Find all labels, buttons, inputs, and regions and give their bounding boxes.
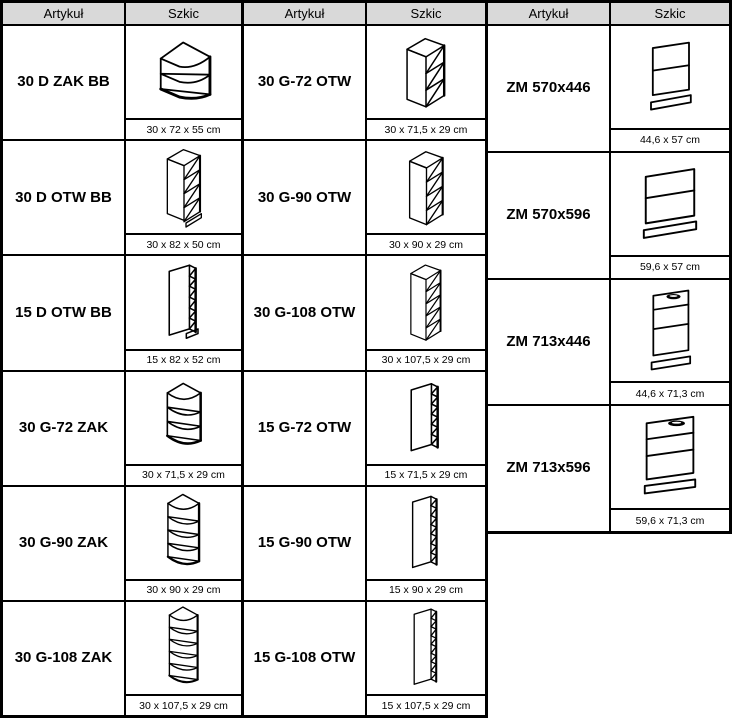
article-name: 15 G-108 OTW bbox=[244, 602, 367, 715]
open-wall-box-72-sketch-icon bbox=[401, 31, 451, 113]
sketch-image bbox=[126, 372, 241, 464]
open-wall-box-108-sketch-icon bbox=[406, 259, 446, 345]
dishwasher-front-713x446-sketch-icon bbox=[641, 287, 699, 373]
sketch-cell: 30 x 107,5 x 29 cm bbox=[126, 602, 241, 715]
table-row: 30 D ZAK BB 30 x 72 x 55 cm bbox=[3, 24, 241, 139]
sketch-image bbox=[611, 406, 729, 508]
table-row: 30 D OTW BB 30 x 82 x 50 cm bbox=[3, 139, 241, 254]
table-header: Artykuł Szkic bbox=[488, 3, 729, 24]
sketch-image bbox=[367, 26, 485, 118]
corner-wall-90-sketch-icon bbox=[162, 492, 205, 574]
table-header: Artykuł Szkic bbox=[244, 3, 485, 24]
table-row: 30 G-108 ZAK 30 x 107,5 x 29 bbox=[3, 600, 241, 715]
sketch-cell: 59,6 x 71,3 cm bbox=[611, 406, 729, 531]
article-column-header: Artykuł bbox=[244, 3, 367, 24]
dishwasher-front-570x596-sketch-icon bbox=[638, 165, 702, 243]
article-name: 30 D ZAK BB bbox=[3, 26, 126, 139]
sketch-image bbox=[367, 487, 485, 579]
cargo-base-15-sketch-icon bbox=[163, 259, 205, 346]
article-name: ZM 713x596 bbox=[488, 406, 611, 531]
sketch-dimensions: 15 x 107,5 x 29 cm bbox=[367, 694, 485, 715]
sketch-dimensions: 30 x 71,5 x 29 cm bbox=[367, 118, 485, 139]
sketch-column-header: Szkic bbox=[126, 3, 241, 24]
sketch-image bbox=[126, 602, 241, 694]
article-name: 30 G-72 ZAK bbox=[3, 372, 126, 485]
table-row: 30 G-72 ZAK 30 x 71,5 x 29 cm bbox=[3, 370, 241, 485]
sketch-cell: 30 x 72 x 55 cm bbox=[126, 26, 241, 139]
sketch-dimensions: 15 x 90 x 29 cm bbox=[367, 579, 485, 600]
article-column-header: Artykuł bbox=[488, 3, 611, 24]
sketch-image bbox=[126, 487, 241, 579]
sketch-dimensions: 15 x 82 x 52 cm bbox=[126, 349, 241, 370]
sketch-cell: 15 x 82 x 52 cm bbox=[126, 256, 241, 369]
table-row: 30 G-90 OTW 30 x 90 x 29 cm bbox=[244, 139, 485, 254]
sketch-cell: 59,6 x 57 cm bbox=[611, 153, 729, 278]
cabinet-catalog: Artykuł Szkic 30 D ZAK BB 30 x 72 x 55 c… bbox=[0, 0, 732, 718]
table-row: 30 G-72 OTW 30 x 71,5 x 29 cm bbox=[244, 24, 485, 139]
sketch-cell: 44,6 x 57 cm bbox=[611, 26, 729, 151]
table-row: ZM 570x446 44,6 x 57 cm bbox=[488, 24, 729, 151]
narrow-wall-72-sketch-icon bbox=[405, 378, 447, 458]
article-name: ZM 570x446 bbox=[488, 26, 611, 151]
sketch-image bbox=[367, 141, 485, 233]
sketch-dimensions: 30 x 90 x 29 cm bbox=[126, 579, 241, 600]
table-row: ZM 713x596 59,6 x 71,3 cm bbox=[488, 404, 729, 531]
table-row: ZM 570x596 59,6 x 57 cm bbox=[488, 151, 729, 278]
table-row: 15 G-108 OTW 15 x 107,5 x 29 cm bbox=[244, 600, 485, 715]
sketch-image bbox=[611, 153, 729, 255]
sketch-dimensions: 44,6 x 71,3 cm bbox=[611, 381, 729, 404]
sketch-dimensions: 30 x 82 x 50 cm bbox=[126, 233, 241, 254]
catalog-table-3: Artykuł Szkic ZM 570x446 44,6 x 57 cm ZM… bbox=[485, 0, 732, 534]
article-name: 15 G-90 OTW bbox=[244, 487, 367, 600]
sketch-cell: 30 x 107,5 x 29 cm bbox=[367, 256, 485, 369]
corner-wall-72-sketch-icon bbox=[161, 381, 207, 454]
article-name: 30 G-72 OTW bbox=[244, 26, 367, 139]
sketch-dimensions: 30 x 107,5 x 29 cm bbox=[367, 349, 485, 370]
article-name: 30 G-108 OTW bbox=[244, 256, 367, 369]
sketch-dimensions: 30 x 71,5 x 29 cm bbox=[126, 464, 241, 485]
table-row: 15 G-90 OTW 15 x 90 x 29 cm bbox=[244, 485, 485, 600]
sketch-cell: 30 x 71,5 x 29 cm bbox=[126, 372, 241, 485]
sketch-image bbox=[367, 602, 485, 694]
sketch-cell: 30 x 90 x 29 cm bbox=[126, 487, 241, 600]
sketch-cell: 30 x 90 x 29 cm bbox=[367, 141, 485, 254]
sketch-image bbox=[367, 256, 485, 348]
cargo-base-30-sketch-icon bbox=[162, 143, 206, 231]
sketch-image bbox=[611, 280, 729, 382]
sketch-column-header: Szkic bbox=[611, 3, 729, 24]
article-column-header: Artykuł bbox=[3, 3, 126, 24]
article-name: 30 D OTW BB bbox=[3, 141, 126, 254]
sketch-image bbox=[611, 26, 729, 128]
table-row: 15 G-72 OTW 15 x 71,5 x 29 cm bbox=[244, 370, 485, 485]
narrow-wall-108-sketch-icon bbox=[409, 605, 444, 691]
sketch-dimensions: 30 x 90 x 29 cm bbox=[367, 233, 485, 254]
article-name: ZM 713x446 bbox=[488, 280, 611, 405]
article-name: 15 D OTW BB bbox=[3, 256, 126, 369]
sketch-column-header: Szkic bbox=[367, 3, 485, 24]
sketch-cell: 15 x 107,5 x 29 cm bbox=[367, 602, 485, 715]
article-name: 15 G-72 OTW bbox=[244, 372, 367, 485]
corner-open-base-sketch-icon bbox=[150, 37, 218, 107]
sketch-dimensions: 44,6 x 57 cm bbox=[611, 128, 729, 151]
sketch-dimensions: 15 x 71,5 x 29 cm bbox=[367, 464, 485, 485]
table-row: 30 G-90 ZAK 30 x 90 x 29 cm bbox=[3, 485, 241, 600]
sketch-image bbox=[126, 141, 241, 233]
dishwasher-front-713x596-sketch-icon bbox=[639, 414, 701, 500]
table-row: 30 G-108 OTW 30 x 107,5 x 29 cm bbox=[244, 254, 485, 369]
sketch-cell: 30 x 82 x 50 cm bbox=[126, 141, 241, 254]
article-name: 30 G-90 OTW bbox=[244, 141, 367, 254]
narrow-wall-90-sketch-icon bbox=[407, 492, 445, 574]
sketch-dimensions: 59,6 x 57 cm bbox=[611, 255, 729, 278]
sketch-dimensions: 30 x 107,5 x 29 cm bbox=[126, 694, 241, 715]
table-row: ZM 713x446 44,6 x 71,3 cm bbox=[488, 278, 729, 405]
corner-wall-108-sketch-icon bbox=[164, 605, 203, 691]
article-name: 30 G-90 ZAK bbox=[3, 487, 126, 600]
sketch-cell: 15 x 71,5 x 29 cm bbox=[367, 372, 485, 485]
table-header: Artykuł Szkic bbox=[3, 3, 241, 24]
article-name: 30 G-108 ZAK bbox=[3, 602, 126, 715]
sketch-cell: 30 x 71,5 x 29 cm bbox=[367, 26, 485, 139]
sketch-dimensions: 30 x 72 x 55 cm bbox=[126, 118, 241, 139]
catalog-table-1: Artykuł Szkic 30 D ZAK BB 30 x 72 x 55 c… bbox=[0, 0, 244, 718]
catalog-table-2: Artykuł Szkic 30 G-72 OTW 30 x 71,5 x 29… bbox=[241, 0, 488, 718]
article-name: ZM 570x596 bbox=[488, 153, 611, 278]
sketch-cell: 15 x 90 x 29 cm bbox=[367, 487, 485, 600]
table-row: 15 D OTW BB 15 x 82 x 52 cm bbox=[3, 254, 241, 369]
sketch-cell: 44,6 x 71,3 cm bbox=[611, 280, 729, 405]
open-wall-box-90-sketch-icon bbox=[404, 145, 449, 230]
sketch-image bbox=[367, 372, 485, 464]
sketch-image bbox=[126, 26, 241, 118]
dishwasher-front-570x446-sketch-icon bbox=[640, 39, 700, 115]
sketch-dimensions: 59,6 x 71,3 cm bbox=[611, 508, 729, 531]
sketch-image bbox=[126, 256, 241, 348]
